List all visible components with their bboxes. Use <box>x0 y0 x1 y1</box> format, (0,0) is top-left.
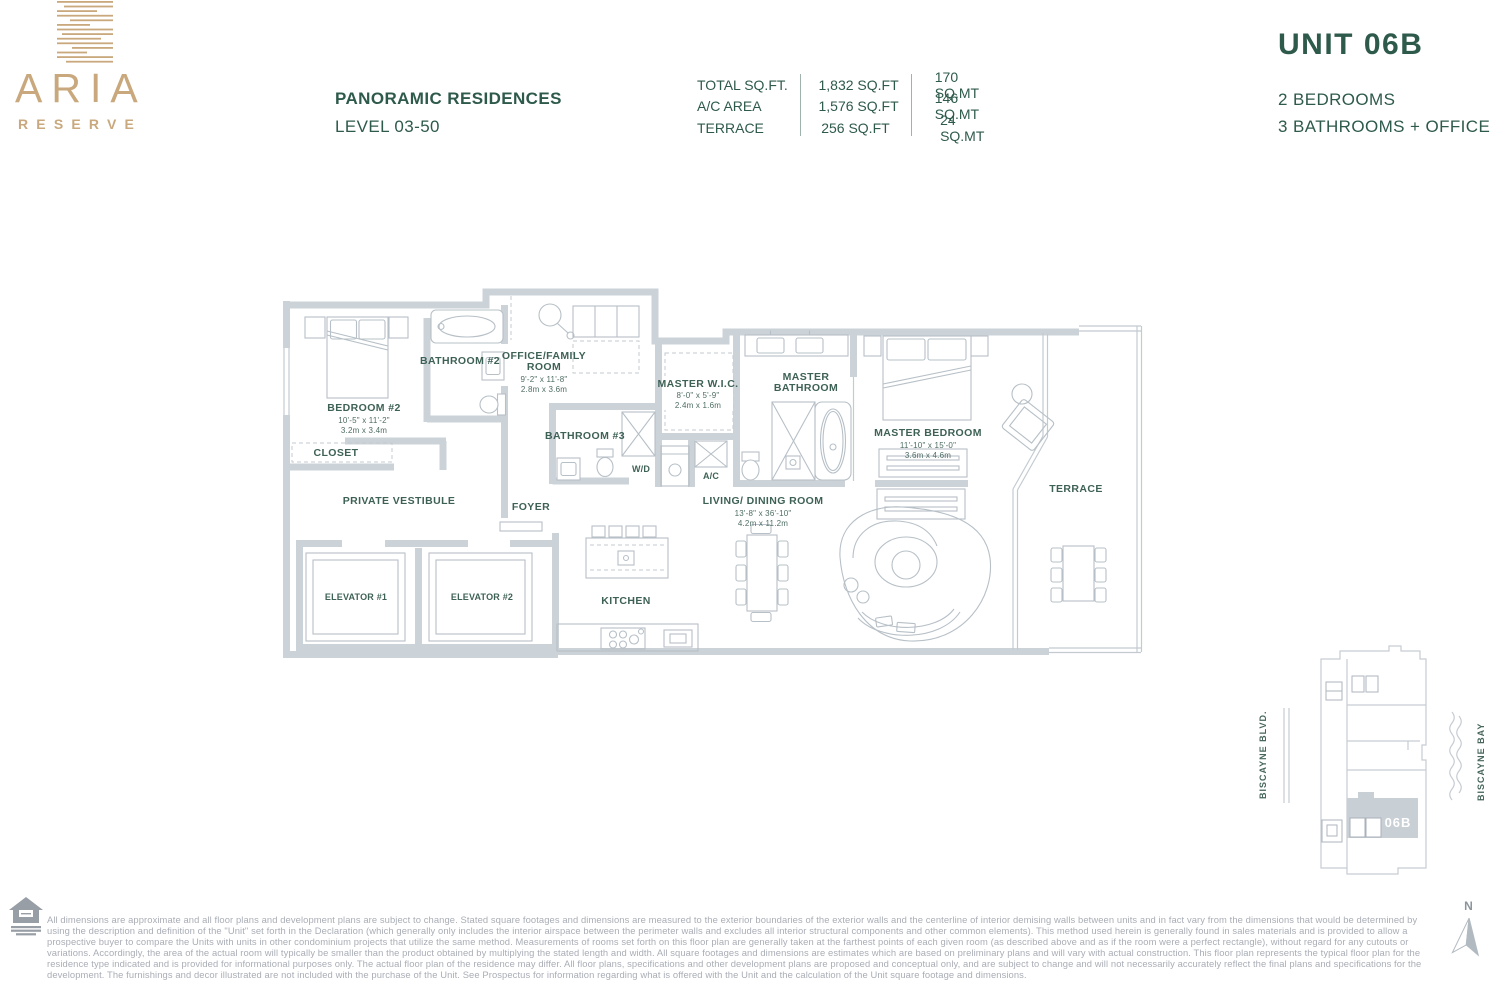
washer-dryer-label: W/D <box>632 464 650 474</box>
area-table: TOTAL SQ.FT. 1,832 SQ.FT 170 SQ.MT A/C A… <box>697 74 997 139</box>
master-bedroom-label: MASTER BEDROOM <box>874 427 982 439</box>
bathroom2-label: BATHROOM #2 <box>420 355 500 367</box>
elevator2: ELEVATOR #2 <box>429 553 532 641</box>
living-dining-dims-ft: 13'-8" x 36'-10" <box>735 509 792 518</box>
biscayne-bay-label: BISCAYNE BAY <box>1476 723 1486 801</box>
area-label: TERRACE <box>697 120 803 136</box>
master-bedroom-furniture <box>864 336 1055 477</box>
kitchen-label: KITCHEN <box>601 595 650 607</box>
living-dining-label: LIVING/ DINING ROOM <box>703 495 824 507</box>
table-divider <box>911 74 912 136</box>
bedroom2-dims-m: 3.2m x 3.4m <box>341 426 387 435</box>
kitchen-counter <box>557 624 698 651</box>
elevator1: ELEVATOR #1 <box>306 553 405 641</box>
table-divider <box>800 74 801 136</box>
master-bedroom-dims-ft: 11'-10" x 15'-0" <box>900 441 956 450</box>
ac-closet <box>695 441 727 467</box>
north-arrow-icon: N <box>1446 896 1488 962</box>
elevator2-label: ELEVATOR #2 <box>451 592 513 602</box>
key-building-outline <box>1321 646 1426 874</box>
area-label: A/C AREA <box>697 98 800 114</box>
legal-disclaimer: All dimensions are approximate and all f… <box>47 915 1425 980</box>
bedrooms-count: 2 BEDROOMS <box>1278 90 1395 110</box>
equal-housing-logo <box>8 896 46 940</box>
foyer-label: FOYER <box>512 501 550 513</box>
north-label: N <box>1464 899 1474 913</box>
living-dining-dims-m: 4.2m x 11.2m <box>738 519 788 528</box>
floorplan-sheet: { "colors": { "brand_gold": "#C9A87D", "… <box>0 0 1495 967</box>
bedroom2-dims-ft: 10'-5" x 11'-2" <box>338 416 390 425</box>
level-range: LEVEL 03-50 <box>335 117 440 137</box>
terrace-table <box>1051 546 1106 602</box>
bedroom2-furniture <box>305 317 408 398</box>
office-dims-m: 2.8m x 3.6m <box>521 385 567 394</box>
site-key-map: 06B BISCAYNE BLVD. BISCAYNE BAY <box>1240 643 1492 890</box>
area-label: TOTAL SQ.FT. <box>697 77 800 93</box>
area-imperial: 1,576 SQ.FT <box>800 98 916 114</box>
brand-building-icon <box>57 0 117 64</box>
key-unit-label: 06B <box>1385 815 1412 830</box>
dining-table <box>736 525 788 622</box>
street-lines <box>1284 708 1289 803</box>
bathroom3-label: BATHROOM #3 <box>545 430 625 442</box>
elevator1-label: ELEVATOR #1 <box>325 592 387 602</box>
master-wic-dims-ft: 8'-0" x 5'-9" <box>677 391 720 400</box>
floorplan-drawing: BEDROOM #2 10'-5" x 11'-2" 3.2m x 3.4m C… <box>278 280 1163 672</box>
console-table <box>877 489 965 519</box>
area-row-terrace: TERRACE 256 SQ.FT 24 SQ.MT <box>697 117 997 139</box>
washer-dryer-unit <box>661 446 689 486</box>
master-bathroom-fixtures <box>742 331 851 481</box>
master-wic-label: MASTER W.I.C. <box>657 378 738 390</box>
area-imperial: 256 SQ.FT <box>803 120 922 136</box>
master-bedroom-dims-m: 3.6m x 4.6m <box>905 451 951 460</box>
key-unit-06b-highlight: 06B <box>1347 792 1418 838</box>
unit-title: UNIT 06B <box>1278 28 1423 62</box>
ac-label: A/C <box>703 471 719 481</box>
private-vestibule-label: PRIVATE VESTIBULE <box>343 495 456 507</box>
brand-wordmark: ARIA <box>15 68 147 109</box>
entry-door-mat <box>500 522 542 531</box>
sofa <box>840 507 991 641</box>
kitchen-island <box>586 526 668 578</box>
office-label-line2: ROOM <box>527 361 561 373</box>
area-imperial: 1,832 SQ.FT <box>800 77 916 93</box>
master-wic-dims-m: 2.4m x 1.6m <box>675 401 721 410</box>
master-bathroom-label-line2: BATHROOM <box>774 382 838 394</box>
closet-label: CLOSET <box>314 447 359 459</box>
residence-type-title: PANORAMIC RESIDENCES <box>335 89 562 109</box>
bathrooms-count: 3 BATHROOMS + OFFICE <box>1278 117 1490 137</box>
biscayne-blvd-label: BISCAYNE BLVD. <box>1258 710 1268 799</box>
water-waves-icon <box>1450 712 1462 800</box>
bedroom2-label: BEDROOM #2 <box>327 402 400 414</box>
terrace-label: TERRACE <box>1049 483 1103 495</box>
office-dims-ft: 9'-2" x 11'-8" <box>521 375 568 384</box>
brand-submark: RESERVE <box>18 117 142 131</box>
area-metric: 24 SQ.MT <box>922 112 997 144</box>
